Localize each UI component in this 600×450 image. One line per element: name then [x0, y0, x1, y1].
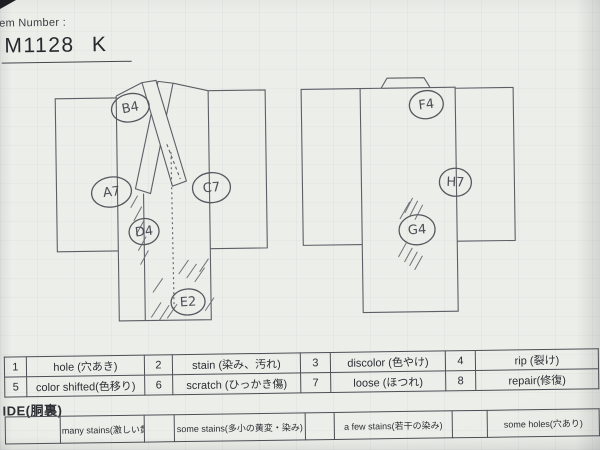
defect-legend-table: 1 hole (穴あき) 2 stain (染み、汚れ) 3 discolor …: [4, 348, 600, 397]
defect-code-a7: A7: [102, 184, 121, 201]
lining-checkbox-cell: [305, 412, 334, 439]
legend-num: 3: [300, 353, 330, 373]
defect-code-b4: B4: [121, 99, 141, 117]
legend-num: 5: [5, 377, 27, 397]
defect-code-d4: D4: [134, 224, 154, 241]
photographed-inspection-sheet: em Number : M1128 K: [0, 0, 600, 450]
paper-sheet: em Number : M1128 K: [0, 0, 600, 450]
legend-num: 4: [445, 350, 475, 370]
lining-checkbox-cell: [144, 415, 174, 442]
defect-code-g4: G4: [407, 222, 426, 238]
defect-circles: [88, 85, 474, 317]
legend-label: repair(修復): [476, 369, 599, 391]
legend-label: discolor (色やけ): [330, 351, 445, 373]
kimono-front-outline: [55, 79, 268, 322]
legend-num: 6: [145, 375, 173, 395]
item-number-label: em Number :: [0, 17, 66, 30]
legend-label: hole (穴あき): [26, 355, 144, 377]
legend-num: 8: [446, 370, 476, 390]
legend-label: scratch (ひっかき傷): [173, 373, 301, 395]
defect-code-f4: F4: [418, 97, 435, 114]
legend-label: rip (裂け): [475, 349, 598, 371]
kimono-back-outline: [301, 76, 516, 313]
lining-condition-table: many stains(激しい黄変・染み) some stains(多小の黄変・…: [5, 408, 600, 444]
defect-code-e2: E2: [179, 294, 196, 310]
lining-row: many stains(激しい黄変・染み) some stains(多小の黄変・…: [5, 409, 599, 444]
legend-num: 1: [4, 357, 26, 377]
legend-num: 2: [144, 355, 172, 375]
kimono-defect-diagram: B4 A7 C7 D4 E2 F4 H7 G4: [0, 56, 600, 354]
lining-option-label: some stains(多小の黄変・染み): [174, 413, 305, 442]
defect-code-h7: H7: [446, 175, 465, 191]
legend-label: stain (染み、汚れ): [172, 353, 300, 375]
legend-label: loose (ほつれ): [331, 371, 446, 393]
lining-checkbox-cell: [452, 410, 487, 437]
item-number-value: M1128 K: [4, 33, 107, 58]
lining-option-label: some holes(穴あり): [487, 409, 599, 438]
legend-label: color shifted(色移り): [27, 375, 145, 397]
defect-code-c7: C7: [202, 180, 221, 196]
lining-option-label: many stains(激しい黄変・染み): [60, 415, 144, 443]
lining-option-label: a few stains(若干の染み): [334, 411, 452, 440]
lining-checkbox-cell: [5, 416, 60, 444]
legend-num: 7: [301, 373, 331, 393]
